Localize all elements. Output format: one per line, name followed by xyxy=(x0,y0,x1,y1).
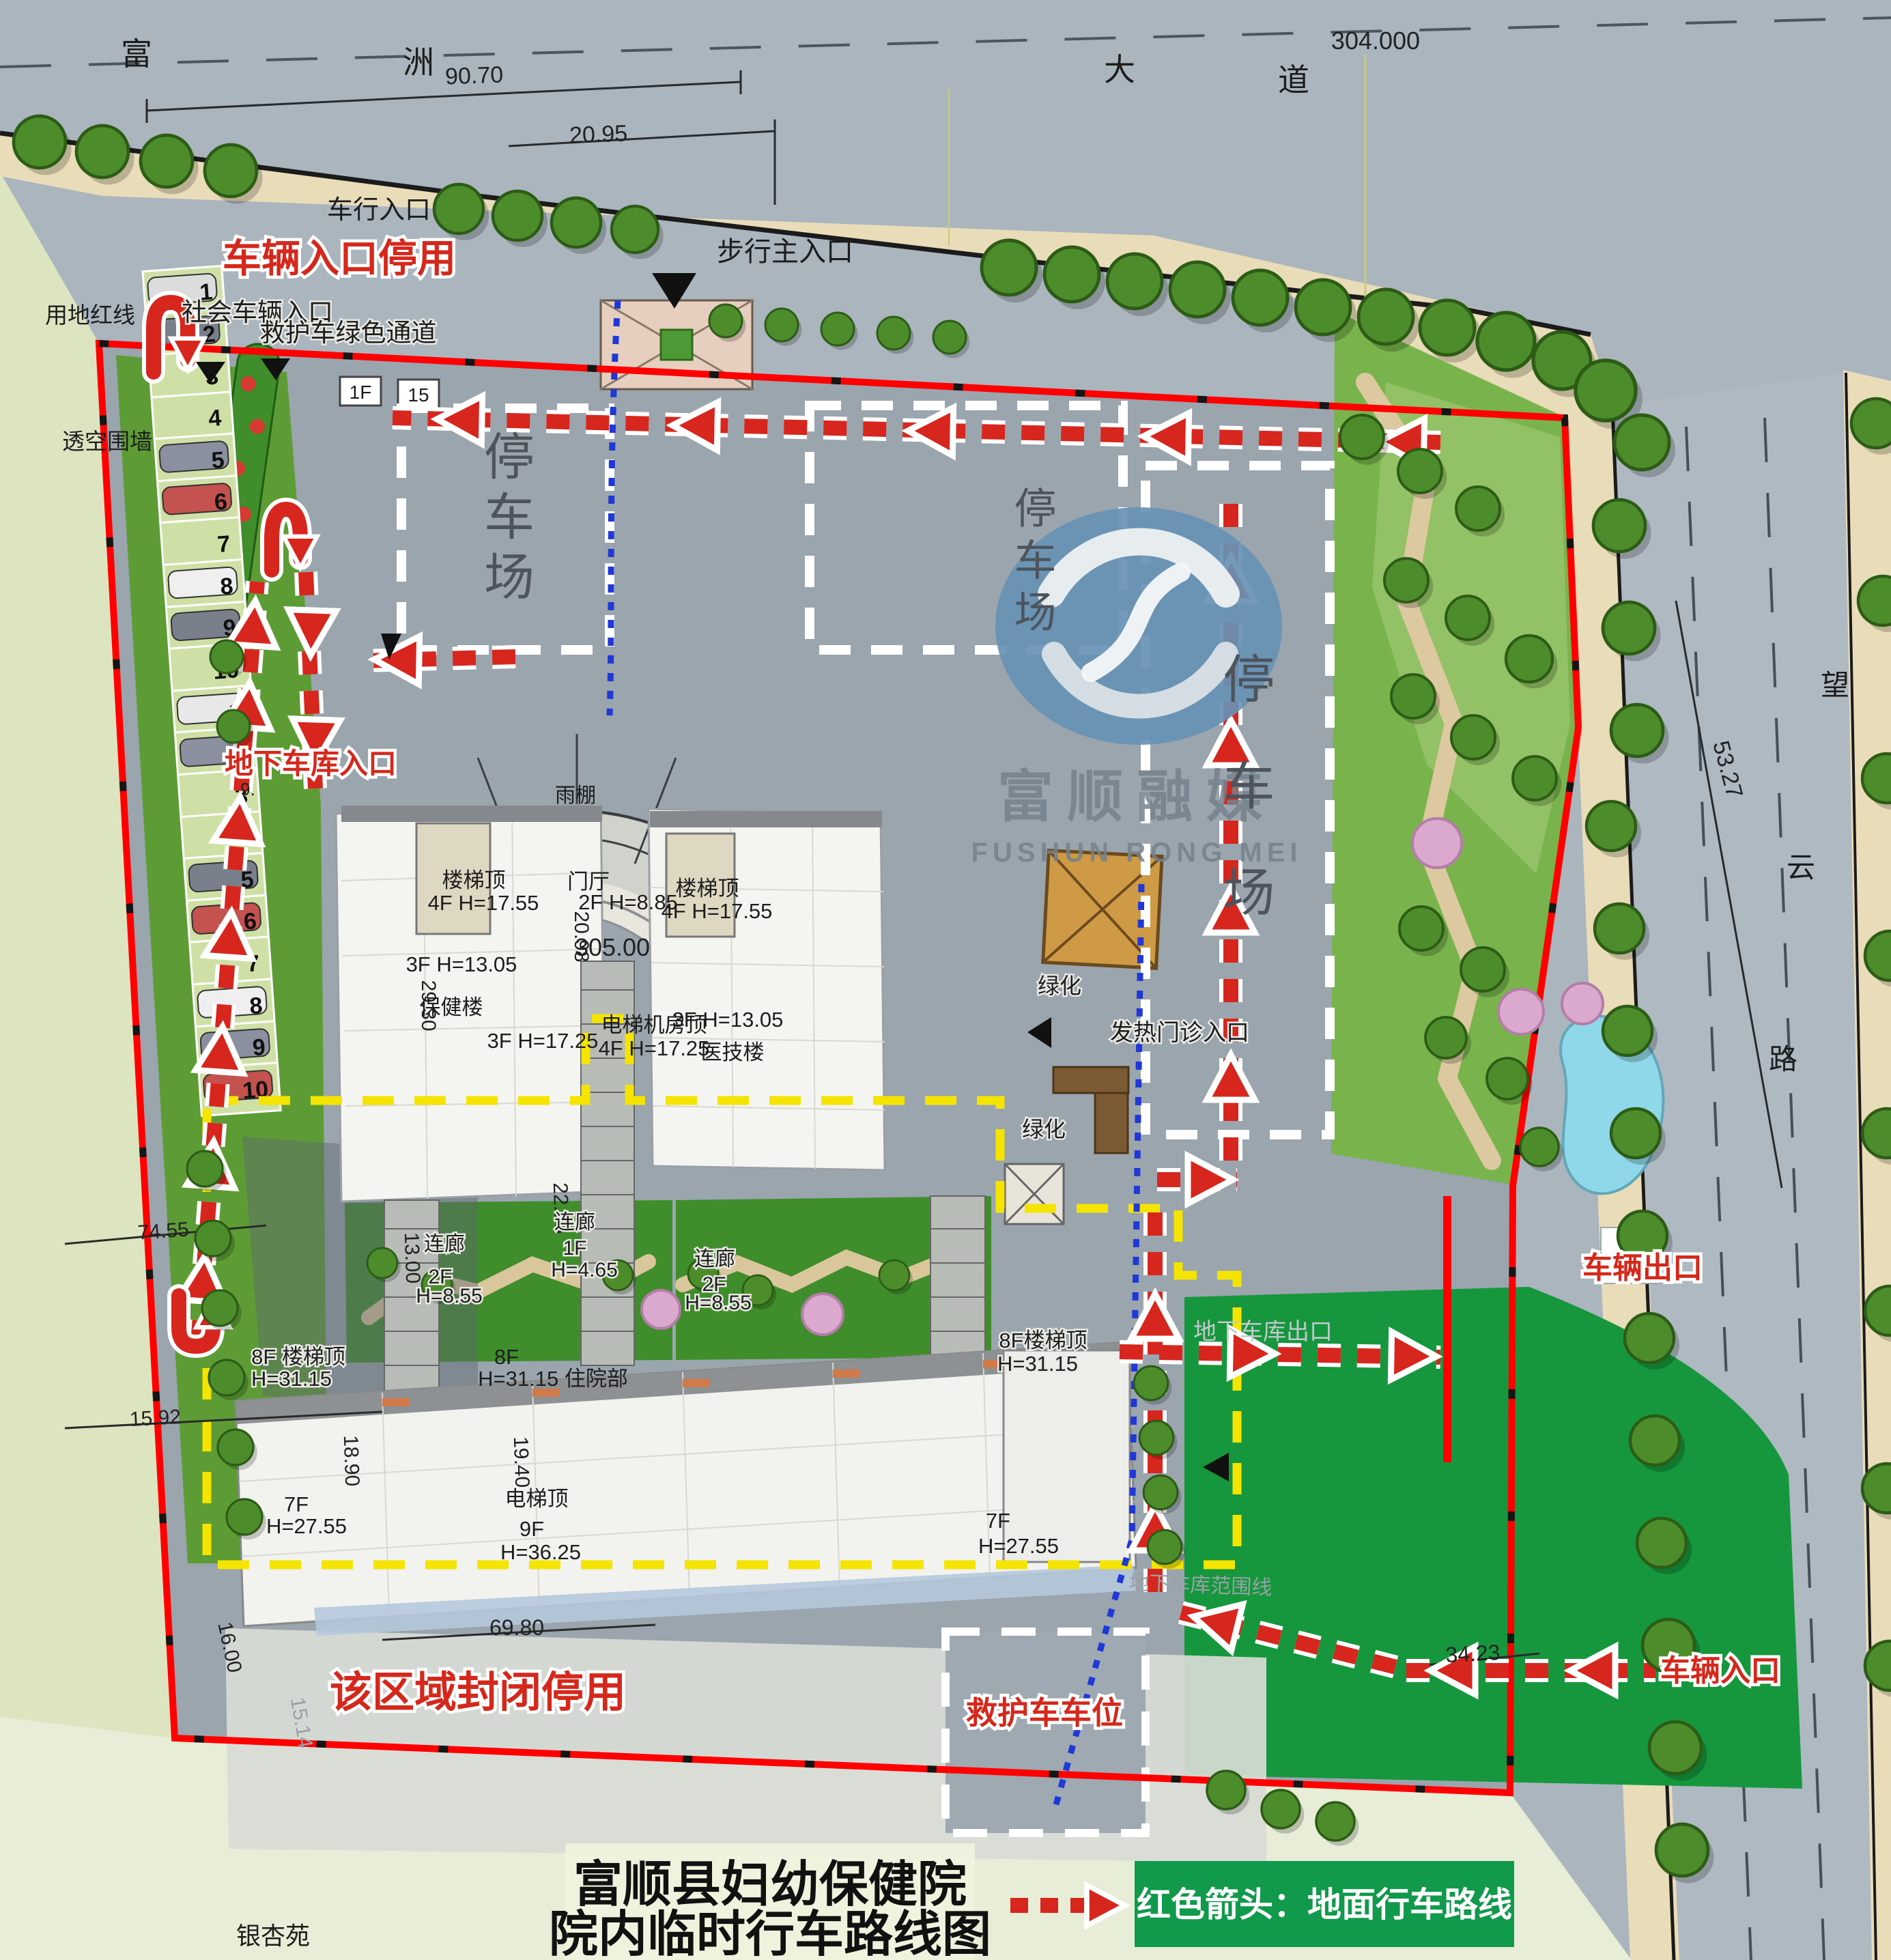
svg-text:H=4.65: H=4.65 xyxy=(551,1259,618,1281)
label-pedestrian-main-entry: 步行主入口 xyxy=(717,237,853,267)
svg-text:4F H=17.25: 4F H=17.25 xyxy=(599,1036,710,1060)
svg-text:4F H=17.55: 4F H=17.55 xyxy=(428,891,539,915)
label-ambulance-parking: 救护车车位 xyxy=(966,1695,1123,1731)
svg-text:H=36.25: H=36.25 xyxy=(500,1540,581,1564)
stall-number: 9 xyxy=(252,1034,267,1061)
label-corridor-left: 连廊 xyxy=(424,1233,465,1255)
label-underground-exit: 地下车库出口 xyxy=(1193,1319,1333,1345)
dim-garage: 9. xyxy=(240,779,255,799)
label-care-building: 保健楼 xyxy=(420,995,483,1019)
site-plan-map: 1 2 3 4 5 6 7 8 9 10 1 2 3 4 5 6 7 8 9 1… xyxy=(0,0,1891,1960)
svg-text:H=27.55: H=27.55 xyxy=(978,1534,1059,1558)
ambulance-parking-box xyxy=(946,1632,1146,1833)
dim-inpatient-mid: 19.40 xyxy=(509,1436,534,1488)
exit-curb-line xyxy=(1443,1196,1451,1462)
map-title-line1: 富顺县妇幼保健院 xyxy=(573,1858,967,1912)
label-tech-h: 3F H=13.05 xyxy=(672,1008,784,1032)
label-parking-lot-left: 停车场 xyxy=(477,430,534,610)
label-wing7f-right: 7F xyxy=(986,1509,1010,1533)
road-char: 云 xyxy=(1787,851,1815,883)
dim-west2: 15.92 xyxy=(129,1406,182,1431)
label-red-line: 用地红线 xyxy=(45,302,135,328)
stall-number: 5 xyxy=(210,447,225,474)
label-gatehouse: 1F xyxy=(350,382,372,403)
label-parking-lot-right: 停车场 xyxy=(1215,652,1274,971)
label-corridor-mid: 连廊 xyxy=(554,1211,595,1234)
site-elevation: 305.00 xyxy=(575,933,650,961)
dim-bottom-entry: 34.23 xyxy=(1445,1640,1501,1667)
label-vehicle-entry-disabled: 车辆入口停用 xyxy=(223,237,456,281)
road-char: 道 xyxy=(1278,62,1309,98)
label-vehicle-entry-bottom: 车辆入口 xyxy=(1660,1654,1780,1688)
dim-entry-width: 20.95 xyxy=(569,121,627,149)
label-tech-building: 医技楼 xyxy=(701,1040,765,1064)
label-vehicle-entry-top: 车行入口 xyxy=(327,196,431,225)
label-vehicle-exit: 车辆出口 xyxy=(1582,1251,1703,1285)
svg-text:9F: 9F xyxy=(520,1517,544,1541)
road-char: 路 xyxy=(1769,1043,1797,1075)
stall-number: 8 xyxy=(248,993,264,1019)
svg-text:1F: 1F xyxy=(563,1237,586,1260)
label-canopy: 雨棚 xyxy=(555,784,596,807)
road-elevation: 304.000 xyxy=(1331,27,1420,55)
svg-text:H=31.15: H=31.15 xyxy=(251,1367,332,1391)
svg-text:H=8.55: H=8.55 xyxy=(416,1285,483,1307)
dim-building-width: 69.80 xyxy=(489,1615,544,1640)
label-inpatient-stair-right: 8F楼梯顶 xyxy=(999,1329,1087,1352)
label-stair-top-right: 楼梯顶 xyxy=(676,877,739,900)
label-stair-top-left: 楼梯顶 xyxy=(442,868,506,892)
label-greenery: 绿化 xyxy=(1022,1117,1066,1141)
stall-number: 6 xyxy=(214,489,229,515)
label-parking-lot-mid: 停车场 xyxy=(1008,486,1056,642)
legend-text: 红色箭头：地面行车路线 xyxy=(1137,1886,1512,1924)
label-plot15: 15 xyxy=(408,384,429,406)
label-wing7f-left: 7F xyxy=(284,1492,309,1516)
label-closed-area: 该区域封闭停用 xyxy=(330,1669,626,1716)
label-corridor-right: 连廊 xyxy=(694,1248,735,1270)
label-ambulance-channel: 救护车绿色通道 xyxy=(260,319,437,347)
map-title-line2: 院内临时行车路线图 xyxy=(549,1907,991,1960)
svg-text:4F H=17.55: 4F H=17.55 xyxy=(662,899,773,923)
road-char: 大 xyxy=(1104,52,1135,87)
label-greenery: 绿化 xyxy=(1038,974,1081,998)
road-char: 洲 xyxy=(403,44,434,80)
svg-text:H=8.55: H=8.55 xyxy=(685,1292,752,1314)
label-inpatient-floors: 8F xyxy=(494,1345,519,1369)
stall-number: 7 xyxy=(216,531,231,558)
stall-number: 4 xyxy=(208,405,223,431)
dim-corridor-left: 13.00 xyxy=(400,1232,425,1284)
label-fence: 透空围墙 xyxy=(62,429,152,454)
label-inpatient-building: H=31.15 住院部 xyxy=(478,1367,628,1391)
label-fever-entry: 发热门诊入口 xyxy=(1110,1020,1249,1046)
svg-text:H=31.15: H=31.15 xyxy=(997,1352,1078,1376)
dim-inpatient-depth: 18.90 xyxy=(339,1435,364,1487)
label-underground-entry: 地下车库入口 xyxy=(225,748,397,780)
dim-top-width: 90.70 xyxy=(444,62,503,90)
stall-number: 8 xyxy=(219,573,234,599)
dim-west1: 74.55 xyxy=(137,1218,190,1244)
stall-number: 6 xyxy=(243,908,258,935)
label-inpatient-stair-left: 8F 楼梯顶 xyxy=(251,1345,345,1369)
label-care-h: 3F H=13.05 xyxy=(406,952,517,976)
label-elev-top: 电梯顶 xyxy=(505,1487,569,1511)
label-neighbor: 银杏苑 xyxy=(236,1922,310,1950)
svg-text:H=27.55: H=27.55 xyxy=(266,1514,347,1538)
road-char: 富 xyxy=(121,36,152,72)
road-char: 望 xyxy=(1821,669,1849,701)
small-pavilion xyxy=(1005,1164,1064,1224)
label-mid-h: 3F H=17.25 xyxy=(487,1029,599,1053)
